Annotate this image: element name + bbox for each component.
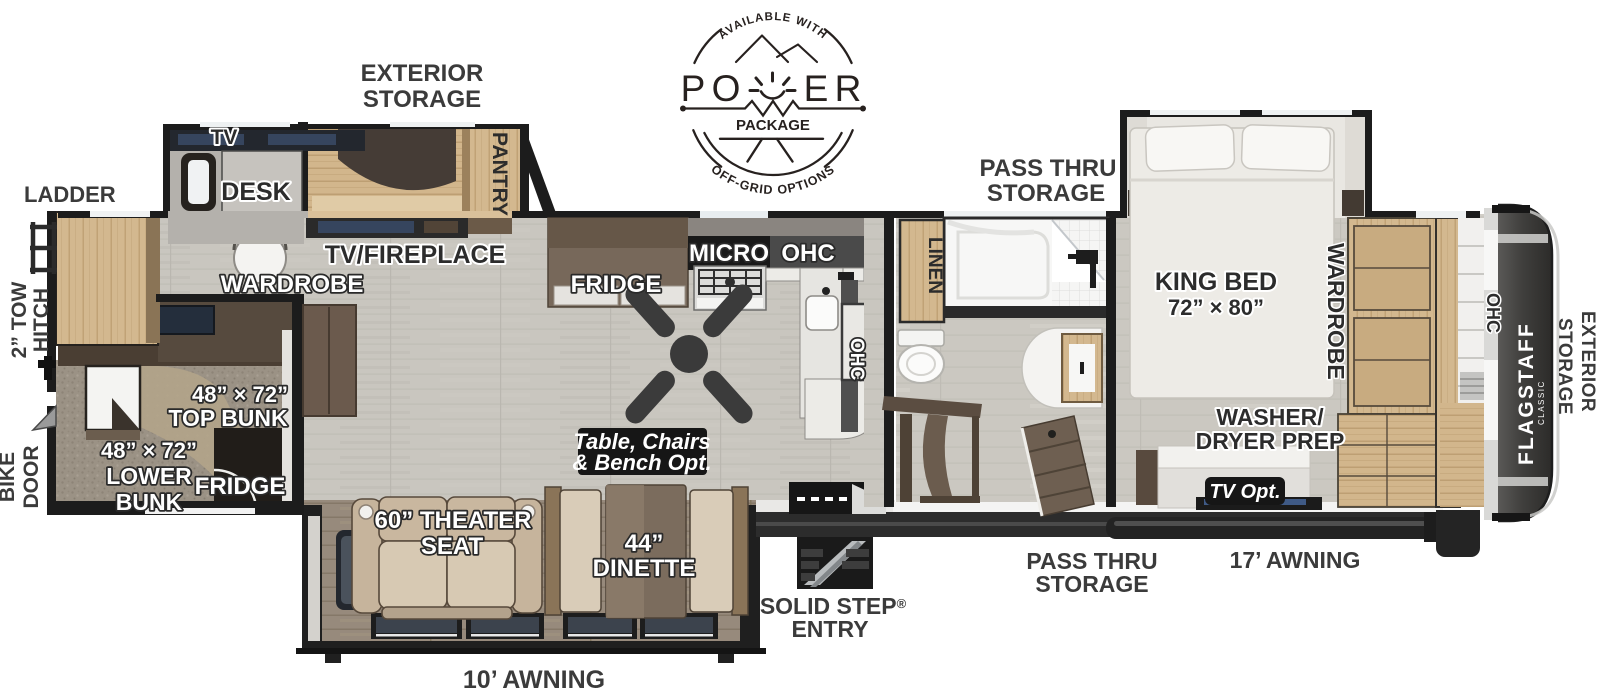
svg-text:ENTRY: ENTRY (791, 616, 868, 642)
svg-text:TV Opt.: TV Opt. (1209, 481, 1280, 503)
svg-text:FRIDGE: FRIDGE (571, 271, 662, 298)
svg-text:DINETTE: DINETTE (593, 555, 696, 582)
svg-text:TOP BUNK: TOP BUNK (168, 405, 288, 431)
svg-text:48” × 72”: 48” × 72” (101, 438, 197, 463)
svg-text:CLASSIC: CLASSIC (1537, 380, 1546, 425)
svg-text:OHC: OHC (1483, 293, 1503, 333)
svg-text:BIKE: BIKE (0, 452, 19, 502)
svg-text:LADDER: LADDER (24, 182, 116, 207)
svg-text:OHC: OHC (781, 240, 834, 267)
svg-text:OHC: OHC (846, 338, 867, 381)
svg-text:STORAGE: STORAGE (363, 86, 481, 113)
svg-text:SEAT: SEAT (421, 533, 484, 560)
svg-text:& Bench Opt.: & Bench Opt. (572, 450, 711, 475)
svg-text:EXTERIOR: EXTERIOR (361, 60, 484, 87)
svg-text:DESK: DESK (221, 178, 290, 206)
svg-text:O: O (712, 68, 741, 109)
svg-text:WASHER/: WASHER/ (1216, 404, 1324, 430)
svg-text:BUNK: BUNK (116, 489, 183, 515)
svg-text:PANTRY: PANTRY (488, 132, 511, 216)
svg-text:10’ AWNING: 10’ AWNING (463, 666, 605, 691)
svg-text:72” × 80”: 72” × 80” (1168, 295, 1264, 320)
svg-text:R: R (835, 68, 862, 109)
svg-text:DRYER PREP: DRYER PREP (1196, 428, 1345, 454)
svg-text:EXTERIOR: EXTERIOR (1577, 311, 1598, 412)
svg-text:LOWER: LOWER (106, 463, 192, 489)
svg-text:FRIDGE: FRIDGE (195, 473, 286, 500)
svg-text:PACKAGE: PACKAGE (736, 117, 810, 134)
svg-text:44”: 44” (625, 530, 664, 557)
svg-text:FLAGSTAFF: FLAGSTAFF (1515, 322, 1538, 465)
svg-text:WARDROBE: WARDROBE (221, 271, 364, 298)
svg-text:PASS THRU: PASS THRU (980, 155, 1117, 182)
svg-text:LINEN: LINEN (924, 237, 945, 294)
svg-text:TV/FIREPLACE: TV/FIREPLACE (325, 241, 506, 269)
svg-text:P: P (681, 68, 706, 109)
svg-text:DOOR: DOOR (20, 446, 43, 509)
svg-text:STORAGE: STORAGE (1554, 318, 1575, 415)
svg-text:KING BED: KING BED (1155, 268, 1277, 296)
svg-text:60” THEATER: 60” THEATER (375, 507, 532, 534)
svg-text:WARDROBE: WARDROBE (1323, 243, 1349, 380)
svg-text:E: E (804, 68, 829, 109)
svg-text:HITCH: HITCH (30, 288, 53, 352)
svg-text:2” TOW: 2” TOW (8, 282, 31, 359)
svg-text:17’ AWNING: 17’ AWNING (1230, 547, 1361, 573)
svg-text:STORAGE: STORAGE (987, 180, 1105, 207)
svg-text:48” × 72”: 48” × 72” (192, 382, 288, 407)
svg-text:STORAGE: STORAGE (1035, 571, 1148, 597)
svg-text:MICRO: MICRO (689, 240, 769, 267)
svg-text:TV: TV (211, 126, 238, 149)
